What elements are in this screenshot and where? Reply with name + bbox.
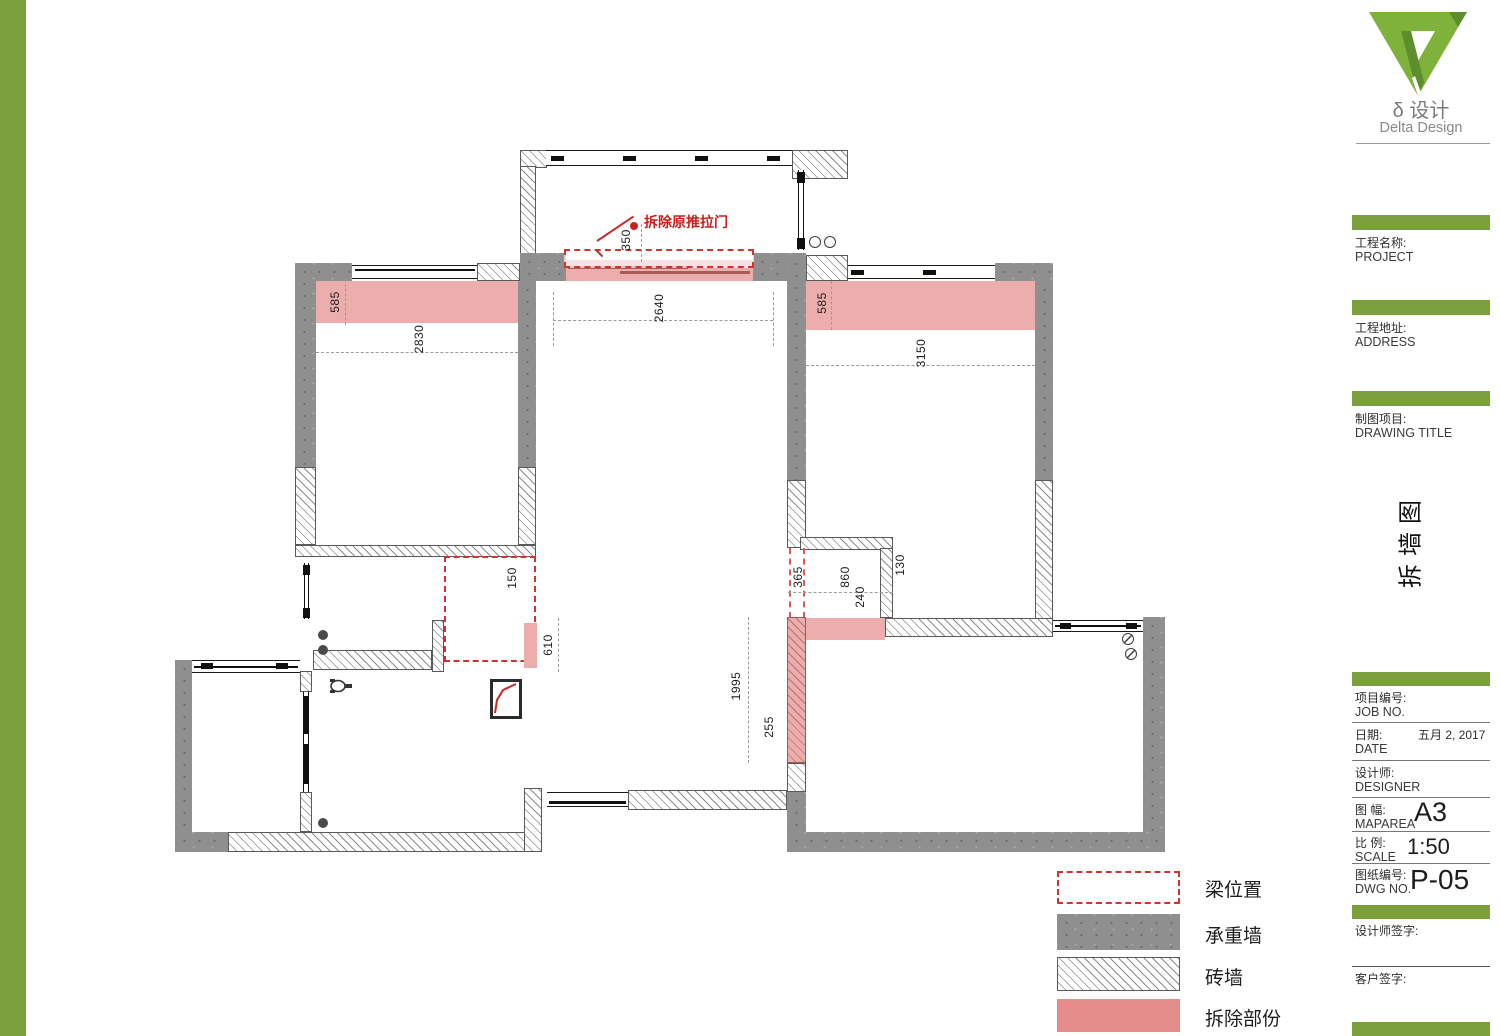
wall-br-top — [885, 618, 1053, 637]
wall-bottom-left-outer — [228, 832, 540, 852]
wall-bearing-bd1-left — [295, 263, 316, 467]
living-window — [547, 792, 628, 807]
green-bar — [1352, 300, 1490, 315]
wall-br-left-lower — [787, 763, 806, 792]
address-label-cn: 工程地址: — [1355, 321, 1406, 335]
demolish-wall-strip-br — [787, 617, 806, 763]
dim-line — [641, 224, 642, 262]
sheet-title-vertical: 拆墙图 — [1391, 492, 1426, 588]
green-bar — [1352, 215, 1490, 230]
legend-label-beam: 梁位置 — [1205, 875, 1262, 902]
faucet-icon — [328, 678, 354, 694]
wall-bd2-right-lower — [1035, 480, 1053, 620]
door-jamb — [797, 172, 805, 183]
divider — [1352, 966, 1490, 967]
wall-bearing-bd2-right — [1035, 281, 1053, 480]
dwg-value: P-05 — [1410, 864, 1469, 896]
wall-bearing-br-corner — [787, 792, 806, 832]
dim-150: 150 — [505, 567, 519, 589]
wall-bd1-right-lower — [518, 467, 536, 545]
window-tick — [1126, 623, 1137, 629]
balcony-window — [546, 150, 792, 166]
drain-dot — [318, 818, 328, 828]
designer-label-en: DESIGNER — [1355, 780, 1420, 794]
wall-nook-right — [880, 548, 893, 618]
wall-bl-door-bottom — [300, 792, 312, 832]
scale-label-en: SCALE — [1355, 850, 1396, 864]
duct-shaft — [490, 679, 522, 719]
dim-610: 610 — [541, 634, 555, 656]
demolish-band-bd2 — [806, 281, 1035, 330]
legend-swatch-demolish — [1057, 999, 1180, 1032]
drain-dot — [318, 645, 328, 655]
drawing-label-en: DRAWING TITLE — [1355, 426, 1452, 440]
project-label-en: PROJECT — [1355, 250, 1413, 264]
door-track-line — [620, 271, 750, 274]
wall-bath-right — [432, 620, 444, 672]
legend-swatch-bearing-wall — [1057, 914, 1180, 950]
beam-kitchen — [444, 556, 536, 662]
dwg-label-cn: 图纸编号: — [1355, 868, 1406, 882]
job-label-en: JOB NO. — [1355, 705, 1405, 719]
wall-bl-door-top — [300, 671, 312, 692]
wall-bd1-left-lower — [295, 467, 316, 545]
vent-circle — [1122, 633, 1134, 645]
bd2-window — [848, 265, 995, 279]
door-leaf — [304, 696, 308, 734]
green-bar — [1352, 905, 1490, 919]
drawing-label-cn: 制图项目: — [1355, 412, 1406, 426]
pipe-circle — [824, 236, 836, 248]
dwg-label-en: DWG NO. — [1355, 882, 1411, 896]
wall-balcony-left — [520, 166, 536, 254]
window-tick — [1060, 623, 1071, 629]
drain-dot — [318, 630, 328, 640]
wall-bearing-balcony-left — [520, 253, 566, 281]
door-leaf — [304, 744, 308, 784]
pipe-circle — [809, 236, 821, 248]
legend-swatch-beam — [1057, 871, 1180, 904]
wall-bearing-bd2-left — [787, 255, 806, 480]
address-label-en: ADDRESS — [1355, 335, 1415, 349]
legend-label-bearing-wall: 承重墙 — [1205, 921, 1262, 948]
dim-line — [558, 618, 559, 672]
scale-label-cn: 比 例: — [1355, 836, 1386, 850]
title-block: δ 设计 Delta Design 工程名称: PROJECT 工程地址: AD… — [1352, 0, 1500, 1036]
delta-design-logo — [1363, 8, 1473, 98]
legend-swatch-brick-wall — [1057, 957, 1180, 991]
wall-bearing-bottom-outer — [787, 832, 1165, 852]
wall-bearing-bl-corner — [175, 832, 228, 852]
divider — [1356, 143, 1490, 144]
dim-130: 130 — [893, 554, 907, 576]
logo-text-en: Delta Design — [1352, 120, 1490, 136]
date-value: 五月 2, 2017 — [1418, 728, 1485, 742]
window-tick — [201, 663, 213, 669]
wall-living-bottom — [628, 790, 787, 810]
dim-line — [788, 592, 893, 593]
legend-label-brick-wall: 砖墙 — [1205, 963, 1243, 990]
date-label-en: DATE — [1355, 742, 1387, 756]
leader-dot — [630, 222, 638, 230]
dim-line — [345, 279, 346, 325]
project-label-cn: 工程名称: — [1355, 236, 1406, 250]
demolish-band-bd1 — [316, 281, 518, 323]
maparea-label-cn: 图 幅: — [1355, 803, 1386, 817]
bd1-window — [352, 265, 477, 279]
client-sign-label: 客户签字: — [1355, 972, 1406, 986]
dim-860: 860 — [838, 566, 852, 588]
door-jamb — [303, 608, 310, 618]
dim-line — [831, 281, 832, 330]
designer-label-cn: 设计师: — [1355, 766, 1394, 780]
divider — [1352, 722, 1490, 723]
maparea-value: A3 — [1414, 797, 1447, 828]
dim-585-right: 585 — [815, 292, 829, 314]
beam-over-sliding-door — [564, 249, 754, 268]
wall-bd1-topright — [477, 263, 520, 281]
maparea-label-en: MAPAREA — [1355, 817, 1415, 831]
designer-sign-label: 设计师签字: — [1355, 924, 1418, 938]
drawing-sheet: 350 拆除原推拉门 585 2830 2640 585 — [0, 0, 1500, 1036]
wall-bd2-topleft — [806, 255, 848, 281]
dim-365: 365 — [791, 566, 805, 588]
scale-value: 1:50 — [1407, 834, 1450, 860]
dim-255: 255 — [762, 716, 776, 738]
dim-350: 350 — [619, 229, 633, 251]
green-bar — [1352, 672, 1490, 686]
dim-2830: 2830 — [412, 325, 426, 354]
door-jamb — [797, 238, 805, 249]
dim-line — [773, 292, 774, 346]
window-tick — [276, 663, 288, 669]
dim-1995: 1995 — [729, 672, 743, 701]
green-bar — [1352, 1022, 1490, 1036]
dim-line — [748, 617, 749, 763]
logo-text-cn: δ 设计 — [1352, 94, 1490, 123]
dim-3150: 3150 — [914, 339, 928, 368]
divider — [1352, 831, 1490, 832]
legend-label-demolish: 拆除部份 — [1205, 1004, 1281, 1031]
wall-bearing-bl-left — [175, 660, 192, 838]
wall-bearing-right-outer — [1143, 617, 1165, 852]
wall-bearing-bd1-right — [518, 281, 536, 467]
date-label-cn: 日期: — [1355, 728, 1382, 742]
dim-2640: 2640 — [652, 294, 666, 323]
wall-step-connector — [524, 788, 542, 852]
wall-bath-bottom — [313, 650, 432, 670]
wall-bearing-bd2-topright — [995, 263, 1053, 281]
door-jamb — [303, 565, 310, 575]
dim-240: 240 — [853, 586, 867, 608]
demolish-strip-kitchen — [524, 623, 537, 668]
dim-line — [553, 292, 554, 346]
vent-circle — [1125, 648, 1137, 660]
green-bar — [1352, 391, 1490, 406]
job-label-cn: 项目编号: — [1355, 691, 1406, 705]
divider — [1352, 760, 1490, 761]
annotation-demolish-door: 拆除原推拉门 — [644, 212, 728, 232]
dim-585-left: 585 — [328, 291, 342, 313]
